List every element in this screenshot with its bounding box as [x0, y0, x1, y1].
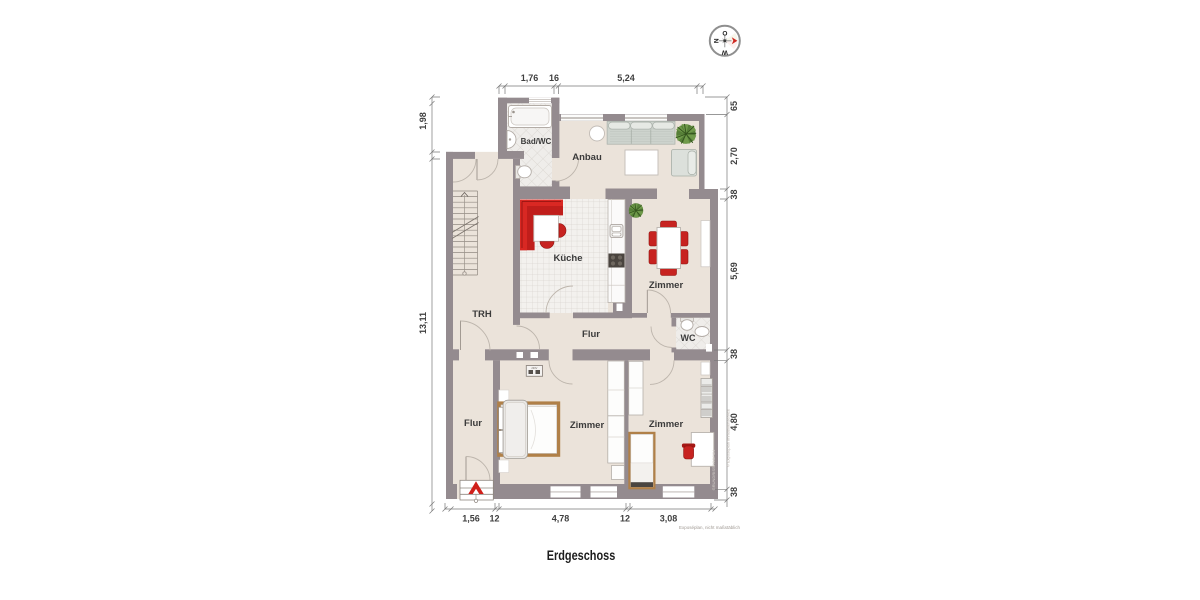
- svg-text:WC: WC: [681, 333, 696, 343]
- svg-text:Flur: Flur: [582, 329, 600, 340]
- svg-text:Bad/WC: Bad/WC: [521, 137, 552, 146]
- svg-text:38: 38: [729, 349, 739, 359]
- svg-text:© Exposéplan Immobilienservice: © Exposéplan Immobilienservice: [726, 408, 731, 467]
- svg-text:1,76: 1,76: [521, 73, 539, 83]
- svg-text:38: 38: [729, 487, 739, 497]
- svg-text:Exposéplan, nicht maßstäblich: Exposéplan, nicht maßstäblich: [679, 525, 741, 530]
- svg-text:W: W: [721, 49, 728, 56]
- svg-text:4,78: 4,78: [552, 514, 570, 524]
- svg-text:13,11: 13,11: [418, 312, 428, 334]
- svg-text:Zimmer: Zimmer: [570, 420, 605, 431]
- svg-text:4,80: 4,80: [729, 413, 739, 431]
- svg-text:16: 16: [549, 73, 559, 83]
- svg-text:Erdgeschoss: Erdgeschoss: [547, 548, 616, 564]
- svg-text:Flur: Flur: [464, 418, 482, 429]
- svg-text:Zimmer: Zimmer: [649, 419, 684, 430]
- svg-text:GRUNDRISSPROFI24: GRUNDRISSPROFI24: [711, 449, 716, 490]
- svg-text:5,69: 5,69: [729, 262, 739, 280]
- svg-text:Zimmer: Zimmer: [649, 280, 684, 291]
- svg-text:5,24: 5,24: [617, 73, 635, 83]
- svg-text:TRH: TRH: [472, 309, 492, 320]
- svg-text:12: 12: [620, 514, 630, 524]
- svg-text:2,70: 2,70: [729, 147, 739, 165]
- svg-text:65: 65: [729, 101, 739, 111]
- svg-text:N: N: [714, 38, 721, 43]
- svg-text:1,98: 1,98: [418, 112, 428, 130]
- svg-text:Küche: Küche: [553, 253, 582, 264]
- svg-text:Anbau: Anbau: [572, 152, 602, 163]
- svg-text:12: 12: [489, 514, 499, 524]
- svg-text:1,56: 1,56: [462, 514, 480, 524]
- svg-text:3,08: 3,08: [660, 514, 678, 524]
- svg-text:38: 38: [729, 189, 739, 199]
- svg-text:230V: 230V: [531, 366, 537, 370]
- svg-text:O: O: [722, 30, 727, 37]
